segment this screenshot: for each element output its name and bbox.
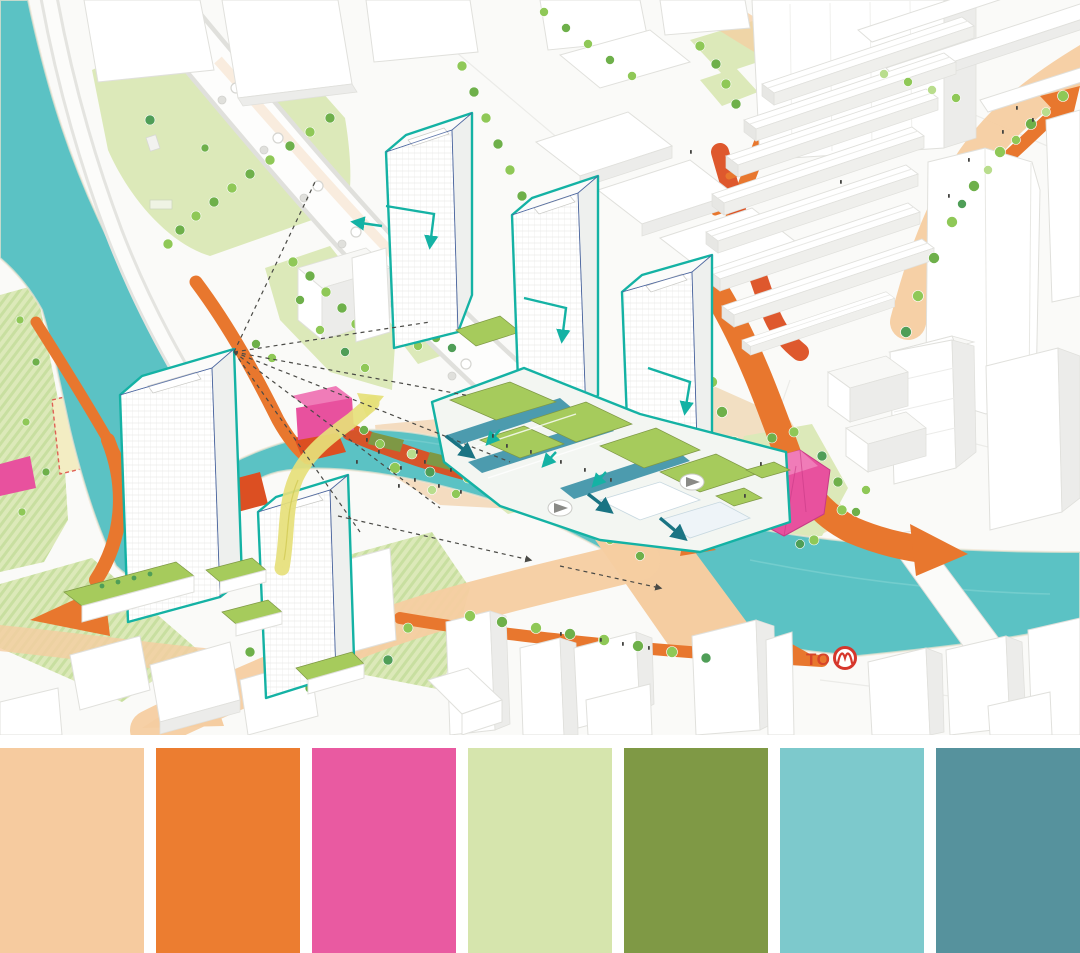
- viewpoint-marker-icon: [548, 500, 572, 516]
- palette-swatch-orange: [156, 748, 300, 953]
- palette-swatch-dark-teal: [936, 748, 1080, 953]
- palette-swatch-peach: [0, 748, 144, 953]
- metro-roundel-icon: [835, 648, 856, 669]
- to-metro-text: TO: [806, 650, 830, 669]
- color-palette-strip: [0, 748, 1080, 953]
- palette-swatch-light-teal: [780, 748, 924, 953]
- palette-swatch-light-green: [468, 748, 612, 953]
- palette-swatch-olive: [624, 748, 768, 953]
- park-bench: [150, 200, 172, 209]
- palette-board: TO: [0, 0, 1080, 953]
- viewpoint-marker-icon: [680, 474, 704, 490]
- masterplan-illustration: TO: [0, 0, 1080, 735]
- palette-swatch-magenta: [312, 748, 456, 953]
